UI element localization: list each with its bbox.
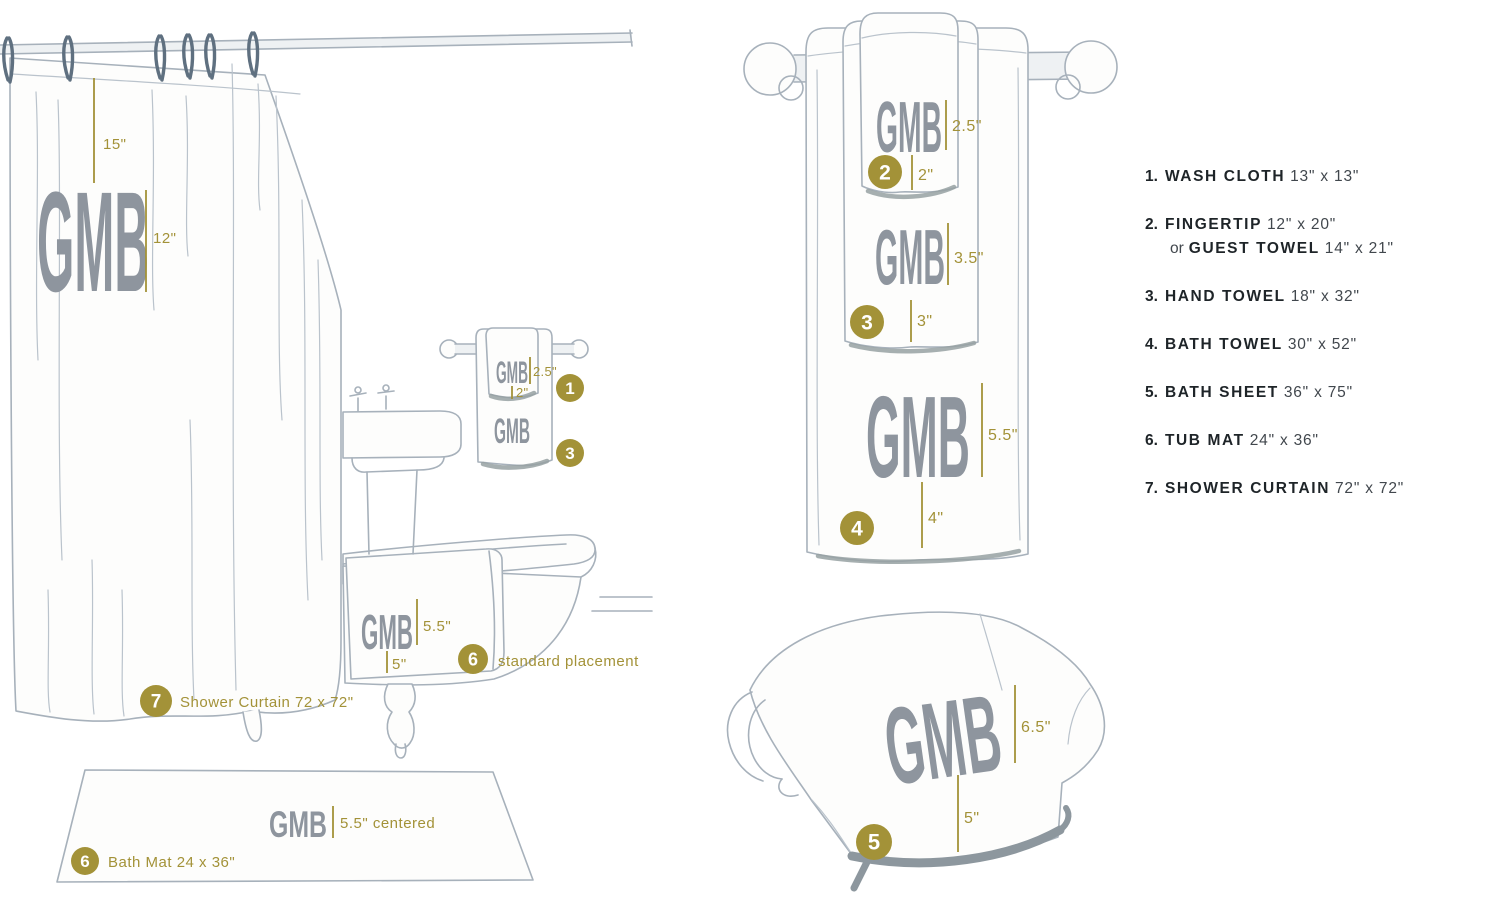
legend-name: BATH SHEET (1165, 384, 1279, 401)
legend-name: WASH CLOTH (1165, 168, 1285, 185)
legend-number: 7. (1145, 480, 1158, 497)
svg-text:6: 6 (468, 649, 478, 669)
mat-height-label: 5.5" centered (340, 815, 435, 832)
sink-hand-towel-monogram: GMB (494, 411, 530, 451)
curtain-monogram-label: 12" (153, 230, 177, 247)
badge-5: 5 (856, 824, 892, 860)
legend-size: 72" x 72" (1335, 480, 1404, 497)
legend-size: 24" x 36" (1250, 432, 1319, 449)
legend-item-bath-towel: 4.BATH TOWEL30" x 52" (1145, 335, 1455, 355)
hand-towel-monogram: GMB (875, 214, 945, 301)
legend-number: 4. (1145, 336, 1158, 353)
towel-stack-illustration: GMB 5.5" 4" 4 GMB 3.5" 3" 3 (690, 0, 1130, 900)
legend-size: 30" x 52" (1288, 336, 1357, 353)
legend-number: 5. (1145, 384, 1158, 401)
bath-sheet-monogram: GMB (877, 672, 1008, 809)
curtain-caption-label: Shower Curtain 72 x 72" (180, 694, 354, 711)
curtain-drop-label: 15" (103, 136, 127, 153)
svg-text:7: 7 (151, 692, 162, 713)
legend-item-guest-towel: orGUEST TOWEL14" x 21" (1145, 239, 1455, 259)
shower-curtain: GMB 15" 12" (4, 33, 341, 741)
legend-size: 18" x 32" (1291, 288, 1360, 305)
svg-text:3: 3 (565, 444, 574, 463)
badge-1: 1 (556, 374, 584, 402)
legend-size: 13" x 13" (1290, 168, 1359, 185)
legend-item-wash-cloth: 1.WASH CLOTH13" x 13" (1145, 167, 1455, 187)
legend-number: 6. (1145, 432, 1158, 449)
wash-cloth-height-label: 2.5" (533, 364, 557, 379)
svg-text:1: 1 (565, 379, 574, 398)
badge-3: 3 (850, 305, 884, 339)
legend-item-hand-towel: 3.HAND TOWEL18" x 32" (1145, 287, 1455, 307)
legend-or: or (1170, 240, 1184, 257)
monogram-placement-guide: GMB 5.5" 5" (0, 0, 1500, 900)
curtain-monogram: GMB (37, 163, 149, 322)
legend-name: HAND TOWEL (1165, 288, 1286, 305)
legend-size: 14" x 21" (1325, 240, 1394, 257)
legend-item-fingertip: 2.FINGERTIP12" x 20" orGUEST TOWEL14" x … (1145, 215, 1455, 259)
svg-text:2: 2 (879, 161, 891, 184)
pedestal-sink (343, 385, 461, 554)
bath-towel-offset-label: 4" (928, 510, 944, 527)
legend-item-shower-curtain: 7.SHOWER CURTAIN72" x 72" (1145, 479, 1455, 499)
fingertip-offset-label: 2" (918, 167, 934, 184)
svg-text:4: 4 (851, 517, 863, 540)
svg-text:6: 6 (80, 852, 89, 871)
hand-towel-height-label: 3.5" (954, 250, 984, 267)
tub-note-label: standard placement (498, 653, 639, 670)
bath-sheet-offset-label: 5" (964, 810, 980, 827)
legend-number: 1. (1145, 168, 1158, 185)
bath-towel-monogram: GMB (866, 373, 970, 502)
bath-mat-monogram: GMB (269, 804, 327, 846)
fingertip-height-label: 2.5" (952, 118, 982, 135)
svg-text:3: 3 (861, 311, 873, 334)
bath-sheet-height-label: 6.5" (1021, 719, 1051, 736)
faucet-handles (350, 385, 394, 411)
legend-size: 36" x 75" (1284, 384, 1353, 401)
svg-text:5: 5 (868, 830, 880, 855)
bath-sheet: GMB 6.5" 5" 5 (728, 612, 1105, 888)
sink-towel-rack: GMB 2.5" 2" GMB 1 3 (440, 328, 588, 468)
hand-towel-offset-label: 3" (917, 313, 933, 330)
legend-name: GUEST TOWEL (1189, 240, 1320, 257)
tub-height-label: 5.5" (423, 618, 451, 635)
bathroom-scene-illustration: GMB 5.5" 5" (0, 0, 660, 900)
bath-mat: GMB 5.5" centered 6 Bath Mat 24 x 36" (57, 770, 533, 882)
badge-3-scene: 3 (556, 439, 584, 467)
badge-4: 4 (840, 511, 874, 545)
legend-name: BATH TOWEL (1165, 336, 1283, 353)
tub-offset-label: 5" (392, 656, 407, 673)
mat-caption-label: Bath Mat 24 x 36" (108, 854, 235, 871)
bath-towel-height-label: 5.5" (988, 427, 1018, 444)
legend-item-tub-mat: 6.TUB MAT24" x 36" (1145, 431, 1455, 451)
shower-rod (0, 30, 632, 54)
legend-name: TUB MAT (1165, 432, 1245, 449)
legend-number: 2. (1145, 216, 1158, 233)
legend-number: 3. (1145, 288, 1158, 305)
legend-name: SHOWER CURTAIN (1165, 480, 1330, 497)
badge-2: 2 (868, 155, 902, 189)
legend-item-bath-sheet: 5.BATH SHEET36" x 75" (1145, 383, 1455, 403)
size-legend: 1.WASH CLOTH13" x 13" 2.FINGERTIP12" x 2… (1145, 167, 1455, 527)
legend-name: FINGERTIP (1165, 216, 1262, 233)
legend-size: 12" x 20" (1267, 216, 1336, 233)
wash-cloth-offset-label: 2" (516, 385, 529, 400)
